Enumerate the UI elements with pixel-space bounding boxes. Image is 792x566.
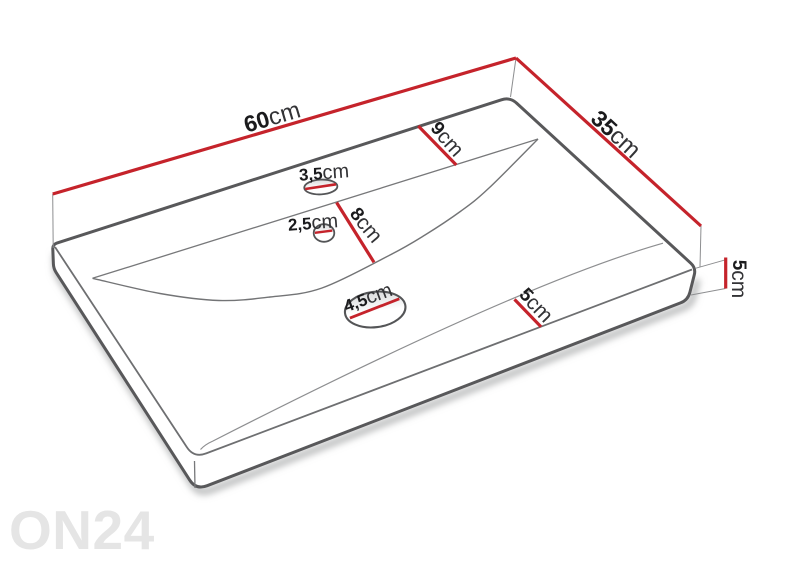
svg-text:60cm: 60cm: [241, 96, 304, 138]
svg-text:2,5cm: 2,5cm: [287, 210, 339, 235]
svg-text:3,5cm: 3,5cm: [298, 160, 350, 185]
svg-text:5cm: 5cm: [728, 260, 751, 299]
svg-text:ON24: ON24: [9, 499, 155, 561]
svg-text:35cm: 35cm: [586, 105, 647, 164]
